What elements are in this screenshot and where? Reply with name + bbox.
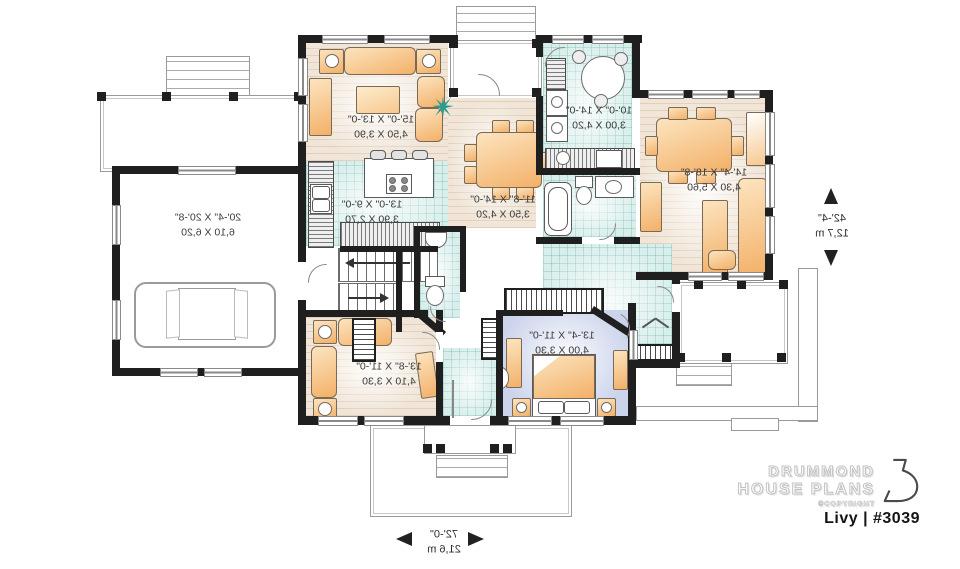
window [648, 90, 684, 99]
front-door-opening [450, 416, 490, 425]
walkway [636, 406, 818, 421]
garage-entry-opening [298, 262, 306, 300]
lamp-icon [422, 54, 436, 68]
garage-window [204, 368, 242, 377]
wall [340, 246, 438, 252]
wall [306, 310, 428, 317]
garage-window [178, 166, 236, 175]
window [734, 90, 760, 99]
bedroom-imperial: 13'-4" X 11'-0" [529, 328, 595, 343]
rear-porch-steps [456, 6, 536, 42]
floor-plan: 20'-4" X 20'-8" 6,10 X 6,20 15'-0" X 13'… [0, 0, 960, 569]
burner-icon [401, 177, 408, 184]
drummond-d-logo [878, 456, 922, 504]
nook-chair [614, 52, 628, 66]
front-porch-steps [436, 455, 508, 478]
window [364, 416, 404, 426]
window [384, 35, 430, 44]
family-chair [696, 107, 716, 120]
laundry-label: 10'-0" X 14'-0" 3,00 X 4,20 [566, 103, 632, 132]
depth-dimension-label: 42'-4" 12,7 m [815, 212, 849, 243]
porch-post [737, 280, 746, 289]
wall [536, 96, 543, 170]
dining-table [476, 132, 542, 188]
sink-basin [312, 199, 330, 212]
stairs-arrow-icon [345, 258, 354, 268]
kitchen-imperial: 13'-0" X 9'-0" [342, 197, 403, 212]
lamp-icon [601, 402, 612, 413]
kitchen-metric: 3,90 X 2,70 [342, 212, 403, 227]
dining-metric: 3,50 X 4,20 [470, 207, 536, 222]
window [728, 272, 764, 281]
lamp-icon [325, 54, 339, 68]
porch-post [722, 353, 731, 362]
nook-chair [572, 50, 586, 64]
pillow [538, 401, 564, 414]
stairs-direction-line [348, 297, 382, 299]
washer-door-icon [551, 96, 563, 108]
stairs-arrow-icon [380, 293, 389, 303]
dim-arrow-down-icon [824, 250, 838, 266]
window [318, 416, 358, 426]
coffee-table [356, 86, 400, 114]
laundry-metric: 3,00 X 4,20 [566, 118, 632, 133]
family-armchair [708, 250, 736, 270]
dining-imperial: 11'-8" X 14'-0" [470, 192, 536, 207]
family-table [656, 118, 732, 172]
bar-stool [370, 150, 386, 160]
porch-post [779, 280, 788, 289]
toilet-bowl [576, 186, 592, 205]
sink-basin [312, 186, 330, 199]
laundry-sink [556, 151, 570, 165]
walkway [798, 268, 818, 422]
pillow [564, 401, 590, 414]
bedroom-metric: 4,00 X 3,30 [529, 343, 595, 358]
family-imperial: 14'-4" X 18'-8" [681, 165, 747, 180]
laundry-imperial: 10'-0" X 14'-0" [566, 103, 632, 118]
wall [436, 362, 443, 416]
wall [496, 310, 503, 416]
garage-label: 20'-4" X 20'-8" 6,10 X 6,20 [175, 210, 241, 239]
window [688, 272, 722, 281]
family-label: 14'-4" X 18'-8" 4,30 X 5,60 [681, 165, 747, 194]
depth-imperial: 42'-4" [815, 212, 849, 227]
wall [614, 237, 640, 244]
dining-chair [464, 166, 477, 184]
porch-post [490, 444, 499, 453]
living-sofa [344, 47, 416, 75]
wall [503, 310, 563, 316]
den-sofa [311, 346, 337, 398]
wall [414, 226, 466, 232]
garage-window [112, 205, 121, 245]
window [298, 104, 308, 142]
window [560, 416, 604, 426]
toilet-bowl [426, 285, 444, 306]
wall [396, 246, 402, 332]
family-side-chair [640, 182, 662, 232]
back-hall-closet [633, 344, 675, 361]
width-dimension-label: 72'-0" 21,6 m [427, 528, 461, 559]
wall [632, 35, 640, 98]
bathtub-basin [548, 187, 568, 231]
living-metric: 4,50 X 3,90 [348, 127, 414, 142]
window [322, 35, 368, 44]
car-windshield [166, 289, 180, 338]
lamp-icon [318, 402, 332, 416]
den-label: 13'-8" X 11'-0" 4,10 X 3,30 [356, 359, 422, 388]
wall [628, 303, 636, 424]
porch-post [694, 280, 703, 289]
family-chair [731, 136, 744, 156]
porch-steps [676, 363, 732, 386]
covered-porch [678, 282, 788, 364]
kitchen-label: 13'-0" X 9'-0" 3,90 X 2,70 [342, 197, 403, 226]
plan-name-label: Livy | #3039 [738, 510, 920, 528]
wall [460, 226, 466, 292]
wall [536, 237, 582, 244]
car-rear-window [234, 289, 248, 338]
wall [536, 168, 640, 175]
wall [536, 43, 543, 57]
den-metric: 4,10 X 3,30 [356, 374, 422, 389]
porch-post [503, 444, 512, 453]
deck-post [97, 92, 106, 101]
garage-window [112, 300, 121, 340]
garage-imperial: 20'-4" X 20'-8" [175, 210, 241, 225]
dining-label: 11'-8" X 14'-0" 3,50 X 4,20 [470, 192, 536, 221]
burner-icon [389, 185, 396, 192]
vanity-sink [605, 180, 622, 194]
living-chaise [309, 78, 332, 136]
range [596, 150, 622, 168]
rear-deck [100, 95, 307, 172]
deck-post [162, 92, 171, 101]
window [552, 35, 584, 44]
bedroom-label: 13'-4" X 11'-0" 4,00 X 3,30 [529, 328, 595, 357]
family-chair [645, 136, 658, 156]
burner-icon [389, 177, 396, 184]
dining-chair [516, 120, 534, 133]
family-chair [668, 107, 688, 120]
window [765, 216, 775, 254]
porch-post [436, 444, 445, 453]
brand-line2: HOUSE PLANS [700, 481, 875, 499]
bar-stool [412, 150, 428, 160]
front-door-leaf [452, 380, 454, 418]
wall [414, 226, 420, 318]
walkway-step [731, 418, 779, 431]
dryer-door-icon [551, 122, 563, 134]
window [765, 112, 775, 156]
window [629, 330, 638, 360]
bathroom-door-opening [584, 237, 612, 244]
linen-closet [352, 318, 376, 362]
dim-arrow-left-icon [396, 532, 412, 546]
width-metric: 21,6 m [427, 543, 461, 558]
brand-line1: DRUMMOND [700, 463, 875, 480]
living-imperial: 15'-0" X 13'-0" [348, 112, 414, 127]
bedroom-dresser [613, 350, 628, 390]
lamp-icon [516, 402, 527, 413]
dining-chair [492, 120, 510, 133]
dim-arrow-up-icon [824, 188, 838, 204]
living-label: 15'-0" X 13'-0" 4,50 X 3,90 [348, 112, 414, 141]
dim-arrow-right-icon [468, 532, 484, 546]
window [765, 164, 775, 208]
dining-chair [464, 144, 477, 162]
car-cabin [178, 288, 236, 340]
garage-window [160, 368, 198, 377]
lamp-icon [318, 325, 332, 339]
burner-icon [401, 185, 408, 192]
porch-post [777, 353, 786, 362]
window [508, 416, 552, 426]
garage-wall [112, 166, 120, 376]
window [298, 58, 308, 96]
copyright-label: ©COPYRIGHT [700, 501, 875, 508]
deck-post [229, 92, 238, 101]
porch-post [423, 444, 432, 453]
depth-metric: 12,7 m [815, 227, 849, 242]
family-metric: 4,30 X 5,60 [681, 180, 747, 195]
width-imperial: 72'-0" [427, 528, 461, 543]
window [592, 35, 624, 44]
garage-metric: 6,10 X 6,20 [175, 225, 241, 240]
window [692, 90, 728, 99]
plant-icon [430, 94, 456, 120]
bar-stool [391, 150, 407, 160]
den-imperial: 13'-8" X 11'-0" [356, 359, 422, 374]
